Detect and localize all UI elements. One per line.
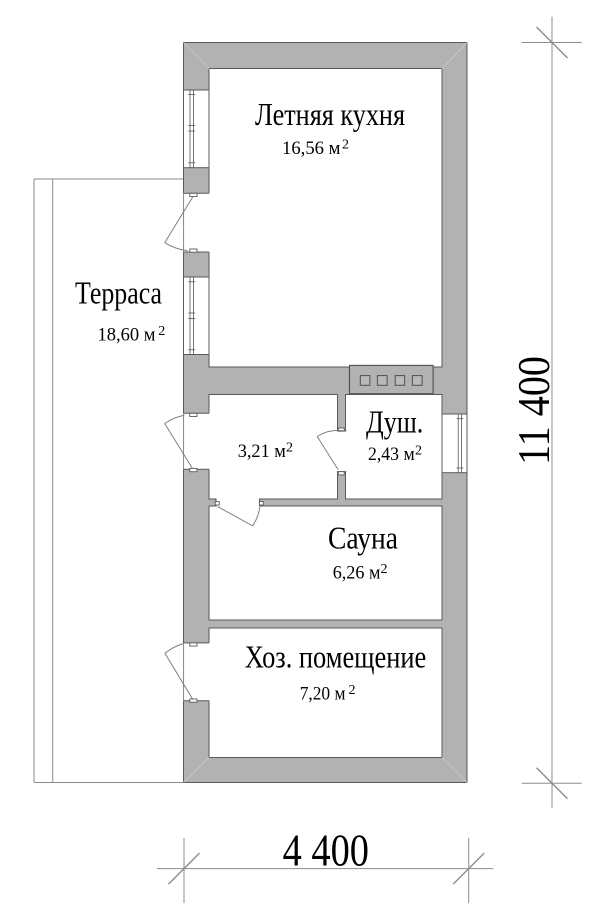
svg-text:2: 2	[415, 444, 422, 459]
svg-text:2: 2	[349, 683, 356, 698]
svg-text:6,26 м: 6,26 м	[333, 563, 381, 584]
svg-text:2: 2	[381, 562, 388, 577]
svg-text:7,20 м: 7,20 м	[300, 684, 346, 705]
svg-text:4 400: 4 400	[283, 825, 369, 875]
svg-text:Летняя кухня: Летняя кухня	[255, 97, 405, 132]
svg-text:Хоз. помещение: Хоз. помещение	[245, 639, 427, 674]
svg-text:18,60 м: 18,60 м	[98, 324, 156, 345]
svg-text:2: 2	[286, 441, 293, 456]
svg-text:Терраса: Терраса	[75, 276, 162, 311]
svg-text:16,56 м: 16,56 м	[282, 138, 341, 159]
svg-text:2,43 м: 2,43 м	[368, 444, 415, 465]
svg-text:Сауна: Сауна	[328, 520, 398, 555]
svg-text:Душ.: Душ.	[366, 405, 423, 440]
svg-text:2: 2	[342, 138, 349, 153]
svg-text:2: 2	[158, 324, 165, 339]
svg-text:11 400: 11 400	[509, 356, 559, 465]
svg-text:3,21 м: 3,21 м	[238, 441, 286, 462]
